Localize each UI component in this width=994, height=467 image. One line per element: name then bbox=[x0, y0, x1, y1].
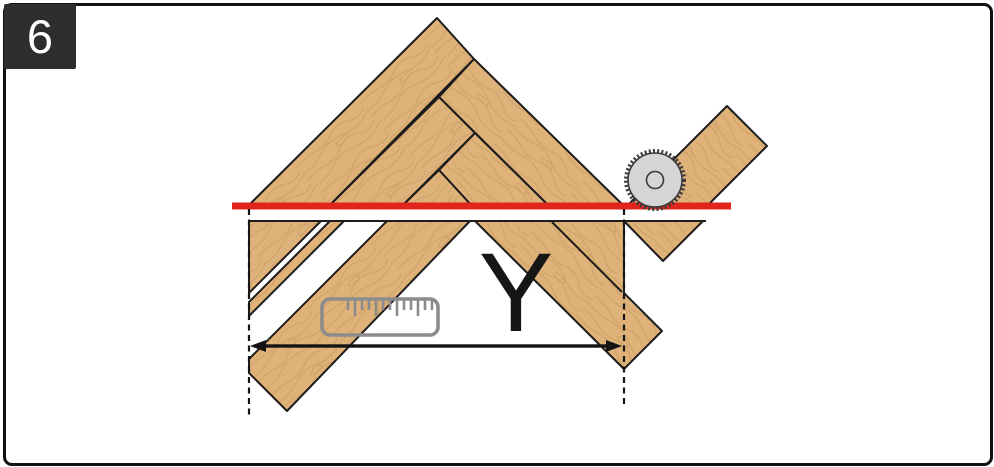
plank-lower-right-tip bbox=[624, 221, 703, 261]
herringbone-lower-row bbox=[249, 221, 706, 411]
step-number: 6 bbox=[27, 9, 53, 64]
saw-disc bbox=[628, 153, 682, 207]
plank-lower-left-tip bbox=[249, 221, 321, 293]
diagram-canvas: Y bbox=[0, 0, 994, 467]
measurement-label: Y bbox=[479, 230, 554, 355]
step-number-badge: 6 bbox=[4, 4, 76, 69]
herringbone-upper-row bbox=[248, 18, 767, 206]
figure-6-panel: Y 6 bbox=[0, 0, 994, 467]
